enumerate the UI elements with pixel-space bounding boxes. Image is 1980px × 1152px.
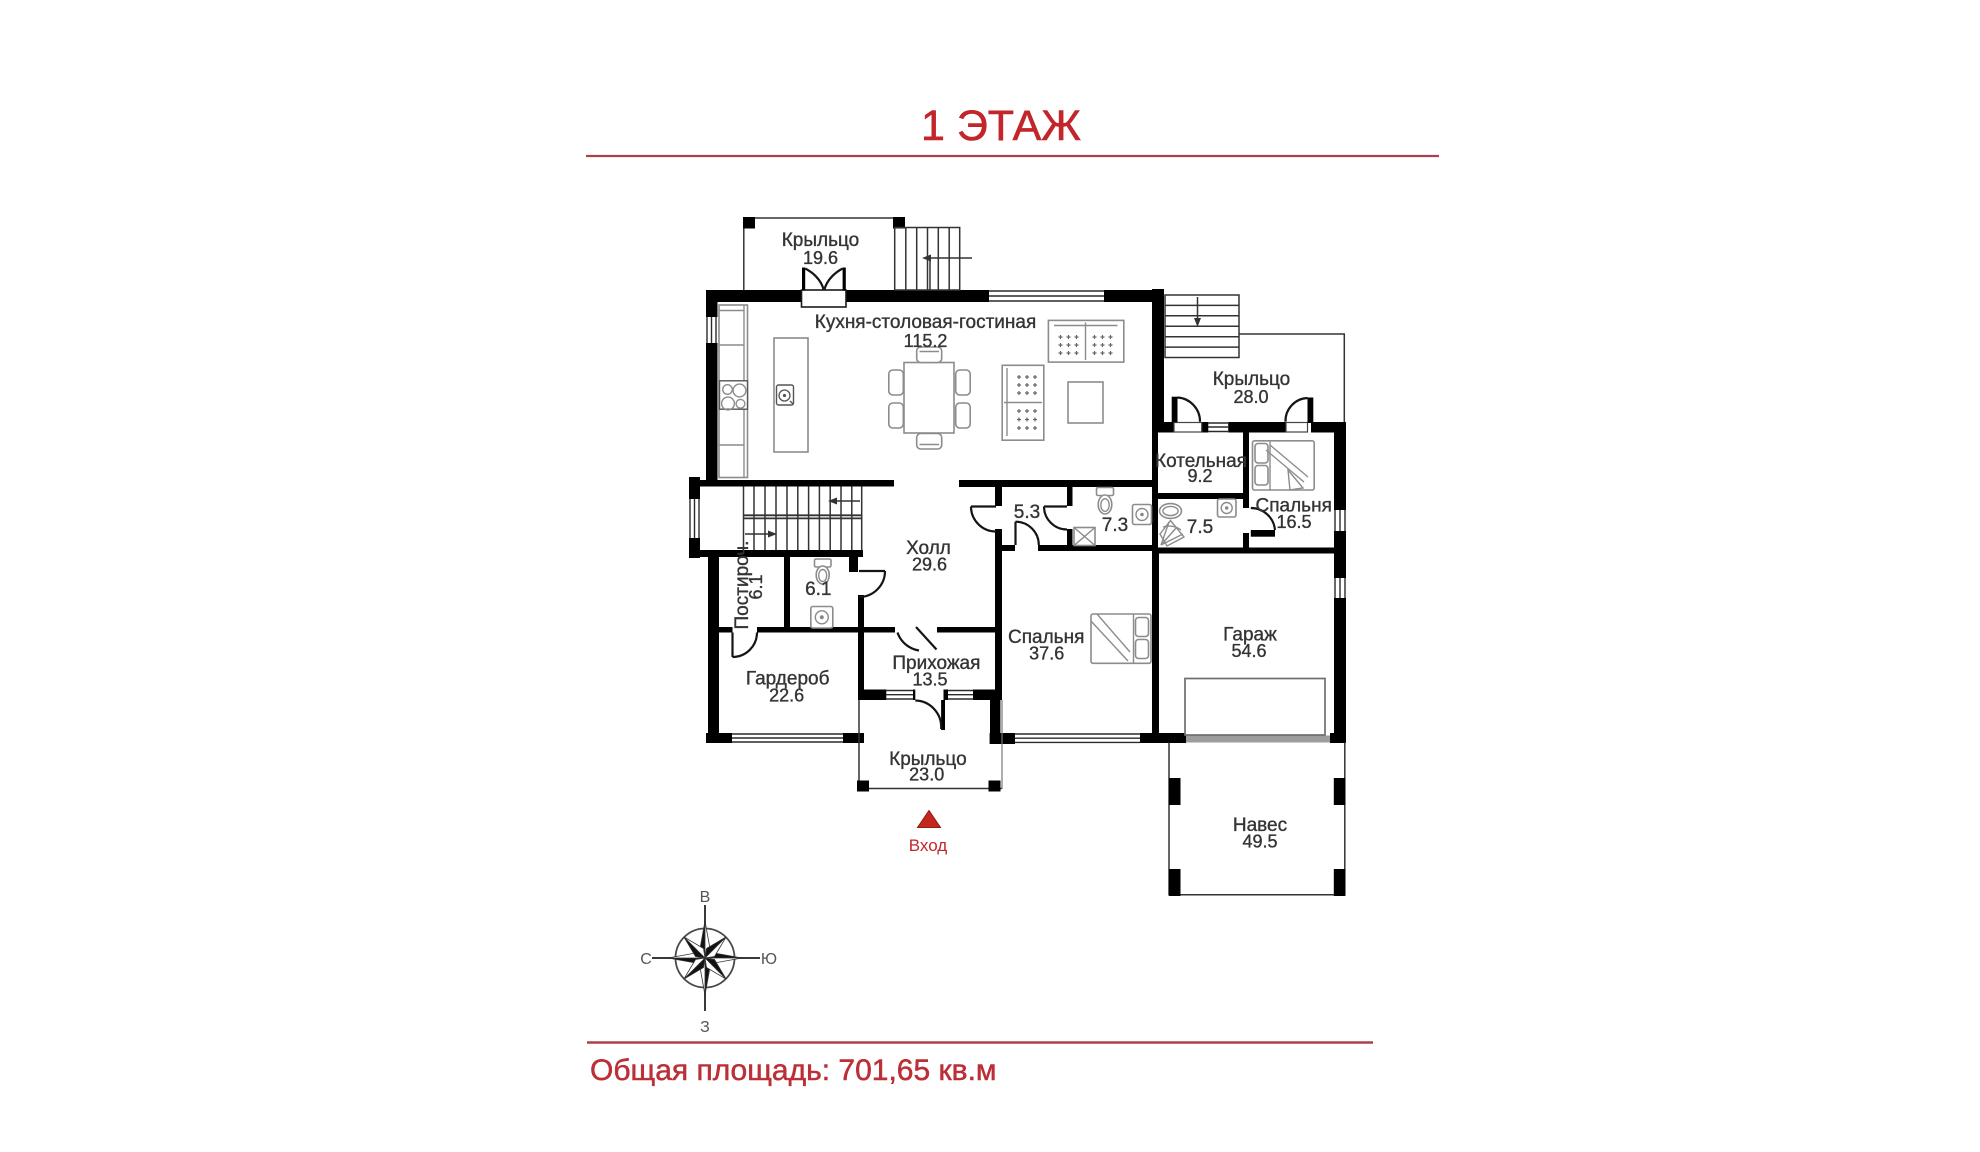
svg-text:7.5: 7.5 <box>1187 517 1213 538</box>
svg-text:6.1: 6.1 <box>805 579 831 600</box>
svg-text:28.0: 28.0 <box>1233 387 1268 407</box>
svg-text:23.0: 23.0 <box>909 765 944 785</box>
svg-text:З: З <box>700 1019 710 1036</box>
svg-text:В: В <box>700 889 711 906</box>
svg-text:Кухня-столовая-гостиная: Кухня-столовая-гостиная <box>815 312 1037 333</box>
svg-text:Вход: Вход <box>909 836 948 855</box>
svg-text:1 ЭТАЖ: 1 ЭТАЖ <box>921 102 1081 150</box>
svg-text:Ю: Ю <box>761 951 777 968</box>
svg-text:19.6: 19.6 <box>803 248 838 268</box>
svg-text:29.6: 29.6 <box>912 555 947 575</box>
svg-text:Общая площадь: 701,65 кв.м: Общая площадь: 701,65 кв.м <box>590 1054 997 1087</box>
svg-text:7.3: 7.3 <box>1102 515 1128 536</box>
svg-text:С: С <box>640 951 652 968</box>
svg-text:5.3: 5.3 <box>1014 502 1040 523</box>
svg-text:9.2: 9.2 <box>1187 466 1212 486</box>
svg-text:37.6: 37.6 <box>1029 644 1064 664</box>
svg-text:54.6: 54.6 <box>1231 641 1266 661</box>
svg-text:6.1: 6.1 <box>746 574 766 599</box>
svg-text:49.5: 49.5 <box>1242 832 1277 852</box>
svg-text:22.6: 22.6 <box>769 686 804 706</box>
svg-text:16.5: 16.5 <box>1276 512 1311 532</box>
svg-text:13.5: 13.5 <box>912 670 947 690</box>
svg-text:115.2: 115.2 <box>904 331 948 351</box>
